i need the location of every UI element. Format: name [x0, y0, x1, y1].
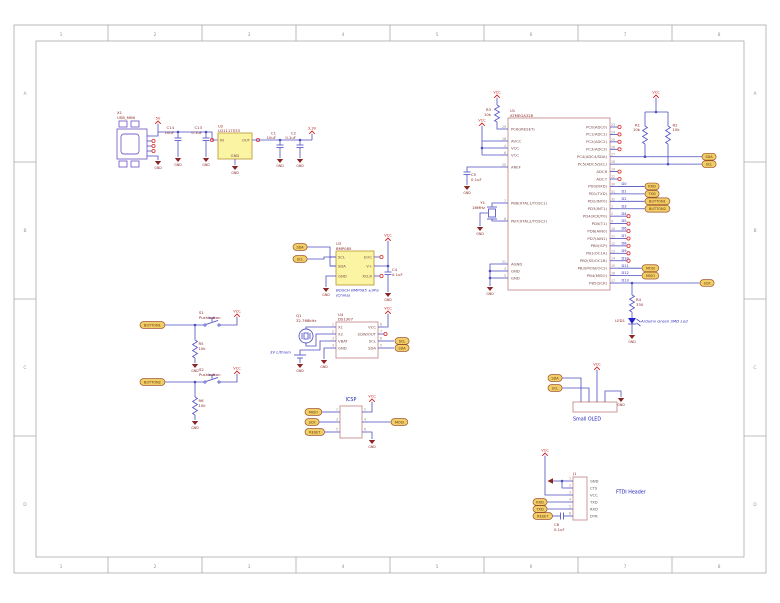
- pin-number: 31: [611, 190, 615, 194]
- net-flag-label: RXD: [536, 500, 544, 504]
- frame-column-label: 4: [342, 564, 345, 570]
- pin-name: PC4(ADC4/SDA): [577, 154, 608, 159]
- vcc-label: VCC: [493, 90, 501, 94]
- usb-connector: X1USB_MINIGND5V: [117, 110, 162, 170]
- icsp-title: ICSP: [346, 397, 357, 403]
- wire: [306, 327, 330, 329]
- button-2: BUTTON2S2PushbuttonVCCR610kGND: [140, 366, 241, 430]
- cap-value: 0.1uF: [191, 130, 202, 135]
- pin-name: ADC6: [596, 169, 607, 174]
- pin-name: PD6(AIN0): [587, 228, 607, 233]
- net-label: D12: [622, 271, 629, 275]
- wire: [307, 247, 336, 266]
- gnd-icon: [203, 158, 209, 162]
- pin-name: PB4(MISO): [587, 273, 608, 278]
- frame-row-label: D: [23, 502, 27, 508]
- pin-name: PD1(TXD): [589, 191, 608, 196]
- vcc-icon: [653, 95, 659, 98]
- wire: [220, 317, 237, 325]
- pin-number: 1: [569, 477, 571, 481]
- gnd-icon: [155, 161, 161, 165]
- pin-name: TXD: [589, 500, 598, 504]
- pin-name: SCL: [369, 338, 377, 343]
- voltage-regulator: U2LD1117S33INOUTGNDGND: [210, 124, 259, 176]
- gnd-label: GND: [368, 445, 376, 449]
- vcc-icon: [234, 371, 240, 374]
- gnd-label: GND: [296, 164, 304, 168]
- wire: [152, 156, 158, 160]
- bmp-note: (China): [336, 293, 351, 298]
- gnd-label: GND: [628, 340, 636, 344]
- pin-name: PB6(XTAL1/TOSC1): [511, 200, 548, 205]
- resistor-value: 330: [636, 302, 644, 307]
- pin-number: 2: [611, 212, 613, 216]
- pin-number: 2: [332, 330, 334, 334]
- net-label: D6: [622, 227, 628, 231]
- usb-pad: [119, 121, 127, 127]
- gnd-icon: [277, 159, 283, 163]
- unconnected-pin-marker: [627, 237, 630, 240]
- gnd-label: GND: [174, 163, 182, 167]
- gnd-label: GND: [231, 171, 239, 175]
- switch-icon: [218, 324, 220, 326]
- resistor-icon: [193, 340, 198, 358]
- cap-value: 0.1uF: [285, 135, 296, 140]
- vcc-icon: [369, 399, 375, 402]
- pin-number: 3: [569, 491, 571, 495]
- pin-name: SDA: [368, 345, 376, 350]
- net-flag-label: TXD: [535, 507, 544, 511]
- unconnected-pin-marker: [380, 255, 383, 258]
- resistor-value: 10k: [484, 112, 492, 117]
- schematic-canvas: 1122334455667788AABBCCDDX1USB_MINIGND5VG…: [0, 0, 780, 603]
- frame-row-label: A: [753, 91, 757, 97]
- net-label: D5: [622, 219, 627, 223]
- cap-value: 0.1uF: [554, 527, 565, 532]
- crystal-16mhz: GNDY116MHz: [472, 200, 500, 236]
- vcc-label: VCC: [593, 362, 601, 366]
- pin-name: PC0(ADC0): [586, 124, 607, 129]
- net-flag-label: BUTTON2: [649, 207, 666, 211]
- wire: [480, 213, 489, 226]
- resistor-icon: [495, 105, 500, 122]
- ftdi-title: FTDI Header: [616, 490, 646, 496]
- junction-dot: [489, 277, 492, 280]
- net-label: D8: [622, 241, 628, 245]
- reset-pullup: VCCR310k: [484, 90, 501, 129]
- wire: [490, 264, 500, 286]
- vcc-label: 5V: [156, 116, 161, 120]
- led-refdes: LED1: [615, 318, 625, 323]
- switch-icon: [204, 324, 206, 326]
- gnd-icon: [487, 287, 493, 291]
- pin-number: 16: [611, 272, 615, 276]
- net-label: D7: [622, 234, 627, 238]
- pin-number: 5: [380, 344, 382, 348]
- pin-number: 6: [569, 512, 571, 516]
- pin-name: SQW/OUT: [357, 331, 376, 336]
- unconnected-pin-marker: [618, 170, 621, 173]
- gnd-icon: [175, 158, 181, 162]
- rtc-crystal-icon: [299, 329, 313, 343]
- gnd-label: GND: [191, 426, 199, 430]
- net-flag-label: RESET: [537, 514, 549, 518]
- bmp-sensor: SDASCLU3BMP085SCLEOCSDAV+GNDXCLRGNDVCCGN…: [293, 233, 403, 302]
- status-led: R4330GNDLED1Arduino Green SMD Led: [615, 283, 688, 344]
- junction-dot: [667, 163, 670, 166]
- net-flag-label: SCK: [704, 281, 712, 285]
- wire: [324, 348, 330, 359]
- pin-number: 9: [611, 220, 613, 224]
- regulator-value: LD1117S33: [218, 128, 241, 133]
- net-label: D11: [622, 264, 629, 268]
- pin-number: 27: [611, 153, 615, 157]
- gnd-label: GND: [384, 298, 392, 302]
- unconnected-pin-marker: [152, 139, 155, 142]
- crystal-icon: [489, 209, 496, 217]
- vcc-icon: [385, 311, 391, 314]
- net-flag-label: SDA: [705, 155, 713, 159]
- gnd-icon: [477, 227, 483, 231]
- net-flag-label: RESET: [309, 430, 321, 434]
- cap-value: 0.1uF: [392, 272, 403, 277]
- pin-name: PC6(/RESET): [511, 126, 535, 131]
- pin-number: 15: [611, 264, 615, 268]
- power-input-rail: GNDC1410uFGNDC130.1uF: [158, 125, 218, 167]
- pin-number: 21: [502, 260, 506, 264]
- frame-column-label: 8: [718, 32, 721, 38]
- pin-number: 17: [611, 279, 615, 283]
- pin-number: 4: [569, 498, 571, 502]
- pin-name: PC5(ADC5/SCL): [578, 161, 608, 166]
- wire: [562, 378, 581, 396]
- wire: [326, 276, 330, 287]
- pin-number: 4: [364, 418, 366, 422]
- frame-row-label: C: [23, 365, 26, 371]
- frame-row-label: D: [753, 502, 757, 508]
- battery-note: 3V Lithium: [270, 350, 291, 355]
- net-flag-label: BUTTON1: [649, 200, 666, 204]
- net-label: D13: [622, 279, 629, 283]
- pin-name: GND: [511, 275, 520, 280]
- pin-number: 25: [611, 138, 615, 142]
- gnd-icon: [297, 364, 303, 368]
- resistor-value: 10k: [633, 127, 641, 132]
- usb-pad: [131, 121, 139, 127]
- vcc-label: VCC: [478, 118, 486, 122]
- mcu-value: ATMEGA328: [510, 113, 534, 118]
- led-note: Arduino Green SMD Led: [640, 319, 688, 324]
- pin-name: PB1(OC1A): [586, 251, 607, 256]
- pin-name: PD2(INT0): [588, 199, 608, 204]
- pin-number: 23: [611, 123, 615, 127]
- gnd-label: GND: [476, 232, 484, 236]
- net-flag-label: MOSI: [395, 420, 404, 424]
- rtc-crystal-icon: [304, 333, 308, 339]
- pin-number: 2: [569, 484, 571, 488]
- vcc-label: VCC: [368, 394, 376, 398]
- frame-column-label: 8: [718, 564, 721, 570]
- pin-number: 12: [611, 242, 615, 246]
- pin-number: 24: [611, 130, 615, 134]
- net-label: D4: [622, 212, 628, 216]
- pin-name: PD7(AIN1): [587, 236, 607, 241]
- pin-number: 8: [380, 323, 382, 327]
- pin-name: PD3(INT1): [588, 206, 608, 211]
- pin-name: PC1(ADC1): [586, 132, 607, 137]
- regulator-pin-name: IN: [220, 138, 224, 143]
- gnd-icon: [385, 293, 391, 297]
- frame-row-label: C: [753, 365, 756, 371]
- vcc-icon: [385, 238, 391, 241]
- unconnected-pin-marker: [627, 252, 630, 255]
- frame-column-label: 5: [436, 564, 439, 570]
- net-flag-label: SDA: [551, 376, 559, 380]
- net-flag-label: SDA: [296, 245, 304, 249]
- net-flag-label: SCL: [399, 339, 406, 343]
- crystal-value: 32.768kHz: [296, 318, 316, 323]
- pin-name: PB3(MOSI/OC2): [578, 265, 608, 270]
- gnd-icon: [232, 166, 238, 170]
- switch-icon: [204, 381, 206, 383]
- pin-name: X2: [338, 331, 344, 336]
- switch-icon: [218, 381, 220, 383]
- frame-column-label: 7: [624, 564, 627, 570]
- frame-column-label: 4: [342, 32, 345, 38]
- unconnected-pin-marker: [618, 133, 621, 136]
- unconnected-pin-marker: [627, 244, 630, 247]
- usb-pad: [119, 161, 127, 167]
- frame-column-label: 6: [530, 32, 533, 38]
- vcc-icon: [542, 453, 548, 456]
- pin-name: GND: [338, 273, 347, 278]
- pin-name: XCLR: [362, 273, 372, 278]
- gnd-label: GND: [276, 164, 284, 168]
- pin-name: PB0(ICP): [591, 243, 608, 248]
- gnd-icon: [618, 398, 624, 402]
- pin-name: AREF: [511, 164, 521, 169]
- unconnected-pin-marker: [618, 125, 621, 128]
- switch-value: Pushbutton: [199, 315, 221, 320]
- pin-name: PD0(RXD): [588, 184, 607, 189]
- junction-dot: [489, 270, 492, 273]
- pin-number: 7: [504, 199, 506, 203]
- unconnected-pin-marker: [627, 215, 630, 218]
- unconnected-pin-marker: [618, 148, 621, 151]
- crystal-value: 16MHz: [472, 205, 485, 210]
- pin-name: RXD: [590, 507, 598, 511]
- frame-row-label: B: [23, 228, 26, 234]
- wire: [368, 402, 372, 412]
- net-label: D2: [622, 197, 627, 201]
- wire: [605, 391, 621, 397]
- pin-number: 13: [611, 249, 615, 253]
- pin-number: 7: [380, 330, 382, 334]
- pin-number: 6: [364, 428, 366, 432]
- frame-column-label: 3: [248, 32, 251, 38]
- gnd-label: GND: [154, 166, 162, 170]
- unconnected-pin-marker: [618, 177, 621, 180]
- gnd-icon: [548, 478, 554, 484]
- gnd-icon: [192, 421, 198, 425]
- vcc-label: 3.3V: [308, 126, 317, 130]
- gnd-icon: [297, 159, 303, 163]
- led-icon: [637, 323, 641, 326]
- resistor-icon: [666, 126, 671, 144]
- pin-name: VCC: [368, 324, 376, 329]
- pin-name: GND: [338, 345, 347, 350]
- rtc-value: DS1307: [338, 317, 354, 322]
- net-flag-label: SDA: [398, 346, 406, 350]
- wire: [497, 122, 500, 129]
- i2c-pullups: VCCR110kR210k: [633, 90, 680, 165]
- regulator-pin-name: GND: [231, 153, 240, 158]
- pin-number: 3: [336, 418, 338, 422]
- vcc-label: VCC: [233, 366, 241, 370]
- power-output-rail: GNDC110uFGNDC20.1uF3.3V: [252, 126, 317, 168]
- unconnected-pin-marker: [384, 332, 387, 335]
- pin-name: AVCC: [511, 138, 522, 143]
- pin-number: 1: [336, 408, 338, 412]
- frame-row-label: B: [753, 228, 756, 234]
- net-label: D3: [622, 204, 627, 208]
- gnd-icon: [629, 335, 635, 339]
- pin-name: PC3(ADC3): [586, 147, 607, 152]
- oled-title: Small OLED: [573, 417, 601, 423]
- cap-value: 0.1uF: [471, 177, 482, 182]
- wire: [152, 132, 158, 136]
- pin-name: SDA: [338, 263, 346, 268]
- net-label: D1: [622, 189, 627, 193]
- wire: [545, 456, 567, 495]
- gnd-label: GND: [296, 369, 304, 373]
- gnd-label: GND: [463, 191, 471, 195]
- resistor-value: 10k: [199, 403, 207, 408]
- pin-name: PC2(ADC2): [586, 139, 607, 144]
- schematic-sheet: 1122334455667788AABBCCDDX1USB_MINIGND5VG…: [0, 0, 780, 603]
- vcc-icon: [234, 314, 240, 317]
- unconnected-pin-marker: [627, 229, 630, 232]
- vcc-label: VCC: [384, 233, 392, 237]
- oled-header: SDASCLVCCGNDSmall OLED: [548, 362, 625, 422]
- pin-number: 26: [611, 145, 615, 149]
- pin-name: EOC: [364, 254, 372, 259]
- pin-name: GND: [590, 479, 599, 483]
- net-flag-label: RXD: [648, 185, 656, 189]
- wire: [562, 388, 589, 396]
- vcc-label: VCC: [541, 448, 549, 452]
- cap-value: 10uF: [165, 130, 174, 135]
- frame-column-label: 6: [530, 564, 533, 570]
- vcc-icon: [155, 121, 161, 124]
- pin-number: 8: [504, 217, 506, 221]
- frame-column-label: 1: [60, 32, 63, 38]
- gnd-label: GND: [320, 365, 328, 369]
- net-label: D0: [622, 182, 628, 186]
- pin-name: VBAT: [338, 338, 349, 343]
- pin-number: 6: [504, 151, 506, 155]
- gnd-icon: [369, 440, 375, 444]
- wire: [368, 432, 372, 439]
- bmp-value: BMP085: [336, 246, 352, 251]
- net-flag-label: SCK: [309, 420, 317, 424]
- usb-body: [121, 134, 139, 154]
- pin-number: 1: [611, 205, 613, 209]
- unconnected-pin-marker: [627, 222, 630, 225]
- pin-number: 1: [332, 323, 334, 327]
- junction-dot: [644, 155, 647, 158]
- wire: [380, 241, 388, 266]
- resistor-icon: [630, 295, 635, 312]
- pin-name: SCL: [338, 254, 346, 259]
- frame-column-label: 7: [624, 32, 627, 38]
- pin-name: VCC: [511, 145, 519, 150]
- resistor-value: 10k: [199, 346, 207, 351]
- resistor-icon: [193, 397, 198, 415]
- unconnected-pin-marker: [618, 140, 621, 143]
- pin-name: AGND: [511, 261, 522, 266]
- pin-name: PB7(XTAL2/TOSC2): [511, 218, 548, 223]
- net-flag-label: MISO: [646, 274, 655, 278]
- net-flag-label: SCL: [552, 386, 559, 390]
- resistor-icon: [643, 126, 648, 144]
- pin-name: X1: [338, 324, 344, 329]
- frame-column-label: 1: [60, 564, 63, 570]
- pin-number: 6: [380, 337, 382, 341]
- rtc: U4DS13071X18VCC2X27SQW/OUT3VBAT6SCL4GND5…: [270, 306, 409, 373]
- pin-name: PD4(XCK/T0): [583, 213, 608, 218]
- junction-dot: [561, 480, 564, 483]
- wire: [492, 203, 500, 207]
- net-flag-label: MOSI: [646, 266, 655, 270]
- pin-number: 4: [332, 344, 334, 348]
- pin-name: V+: [366, 263, 372, 268]
- icsp-body: [340, 406, 362, 438]
- mcu-right-nets: SDASCLD0RXDD1TXDD2BUTTON1D3BUTTON2D4D5D6…: [618, 125, 716, 286]
- pin-number: 2: [364, 408, 366, 412]
- pin-name: CTS: [590, 486, 598, 490]
- vcc-label: VCC: [384, 306, 392, 310]
- aref-cap: GNDC50.1uF: [463, 167, 500, 195]
- pin-number: 5: [504, 274, 506, 278]
- net-label: D10: [622, 256, 630, 260]
- net-flag-label: MISO: [309, 410, 318, 414]
- vcc-icon: [494, 95, 500, 98]
- pin-number: 30: [611, 182, 615, 186]
- unconnected-pin-marker: [152, 149, 155, 152]
- pin-number: 22: [611, 175, 615, 179]
- gnd-icon: [323, 288, 329, 292]
- pin-number: 5: [569, 505, 571, 509]
- pin-number: 3: [332, 337, 334, 341]
- pin-number: 3: [504, 267, 506, 271]
- frame-column-label: 2: [154, 32, 157, 38]
- gnd-icon: [192, 364, 198, 368]
- junction-dot: [655, 111, 658, 114]
- wire: [384, 314, 388, 327]
- cap-value: 10uF: [267, 135, 276, 140]
- gnd-icon: [321, 360, 327, 364]
- pin-name: PB5(SCK): [589, 280, 607, 285]
- pin-name: ADC7: [596, 176, 607, 181]
- vcc-icon: [479, 123, 485, 126]
- net-flag-label: BUTTON1: [144, 323, 161, 327]
- vcc-icon: [309, 131, 315, 134]
- net-flag-label: BUTTON2: [144, 380, 161, 384]
- resistor-value: 10k: [673, 127, 681, 132]
- net-flag-label: SCL: [297, 257, 304, 261]
- pin-number: 5: [336, 428, 338, 432]
